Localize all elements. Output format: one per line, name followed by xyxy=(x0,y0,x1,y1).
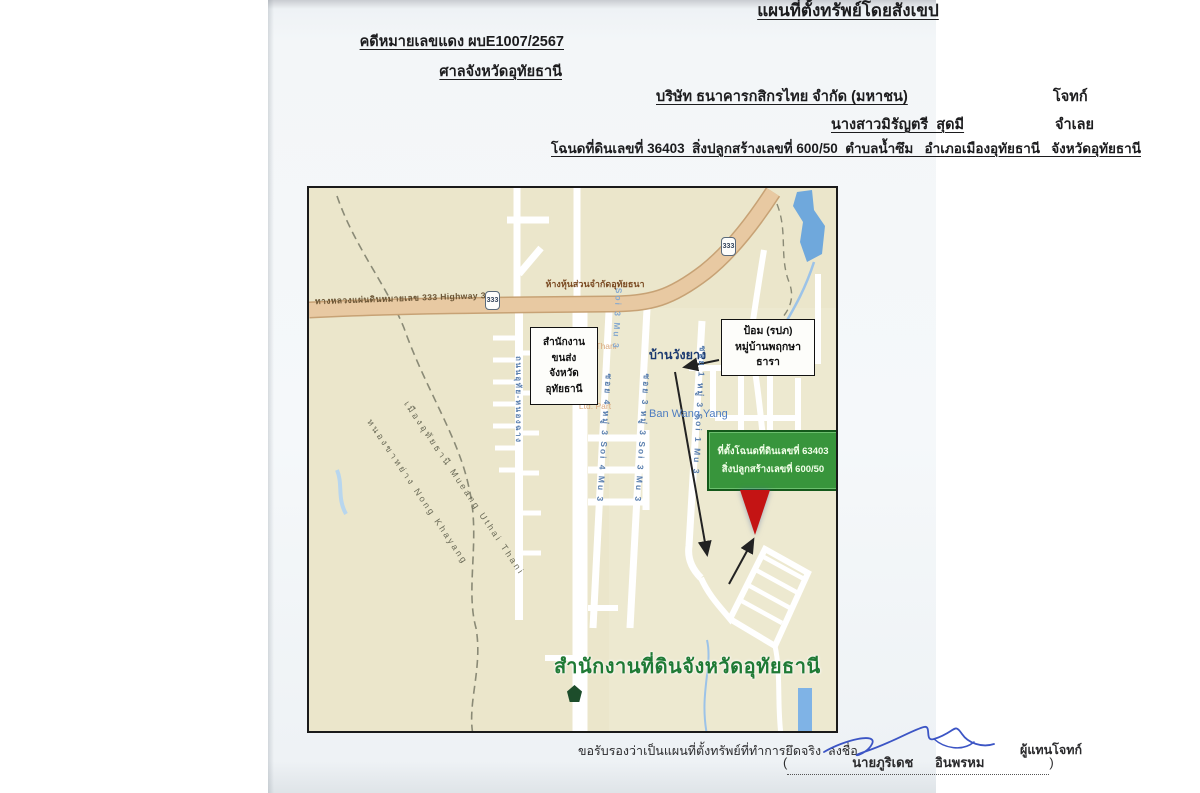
plaintiff-role-label: โจทก์ xyxy=(1053,85,1088,108)
village-english-name: Ban Wang Yang xyxy=(649,407,728,422)
village-thai-name: บ้านวังยาง xyxy=(649,347,728,364)
plaintiff-name: บริษัท ธนาคารกสิกรไทย จำกัด (มหาชน) xyxy=(656,85,908,108)
guard-post-callout: ป้อม (รปภ) หมู่บ้านพฤกษา ธารา xyxy=(721,319,815,376)
scanned-document-page: แผนที่ตั้งทรัพย์โดยสังเขป คดีหมายเลขแดง … xyxy=(0,0,1200,793)
highway-shield-icon: 333 xyxy=(485,291,500,310)
property-pin-icon xyxy=(740,490,770,535)
signer-name-line: (นายภูริเดช อินพรหม) xyxy=(783,752,1054,775)
guard-post-line: หมู่บ้านพฤกษา xyxy=(722,340,814,356)
transport-office-callout: สำนักงาน ขนส่ง จังหวัด อุทัยธานี xyxy=(530,327,598,405)
guard-post-line: ป้อม (รปภ) xyxy=(722,324,814,340)
parcel-building-line: สิ่งปลูกสร้างเลขที่ 600/50 xyxy=(709,461,837,478)
parcel-deed-line: ที่ตั้งโฉนดที่ดินเลขที่ 63403 xyxy=(709,443,837,460)
defendant-name: นางสาวมิรัญตรี สุดมี xyxy=(831,113,964,136)
paren-close: ) xyxy=(1049,755,1053,770)
signer-name: นายภูริเดช อินพรหม xyxy=(787,752,1049,775)
land-office-label: สำนักงานที่ดินจังหวัดอุทัยธานี xyxy=(554,650,821,682)
case-number: คดีหมายเลขแดง ผบE1007/2567 xyxy=(360,30,564,53)
street-label-main-road: ถนนอุทัย-หนองฉาง xyxy=(512,356,525,444)
transport-office-line: อุทัยธานี xyxy=(531,382,597,398)
property-location-map: ทางหลวงแผ่นดินหมายเลข 333 Highway 333 33… xyxy=(307,186,838,733)
parcel-location-callout: ที่ตั้งโฉนดที่ดินเลขที่ 63403 สิ่งปลูกสร… xyxy=(707,430,838,491)
transport-office-line: ขนส่ง xyxy=(531,351,597,367)
defendant-role-label: จำเลย xyxy=(1055,113,1094,136)
guard-post-line: ธารา xyxy=(722,355,814,371)
transport-office-line: สำนักงาน xyxy=(531,335,597,351)
court-name: ศาลจังหวัดอุทัยธานี xyxy=(439,60,562,83)
page-title: แผนที่ตั้งทรัพย์โดยสังเขป xyxy=(698,0,998,24)
poi-thai-name: ห้างหุ้นส่วนจำกัดอุทัยธนา xyxy=(505,278,685,292)
transport-office-line: จังหวัด xyxy=(531,366,597,382)
highway-shield-icon: 333 xyxy=(721,237,736,256)
property-description: โฉนดที่ดินเลขที่ 36403 สิ่งปลูกสร้างเลขท… xyxy=(551,137,1141,159)
